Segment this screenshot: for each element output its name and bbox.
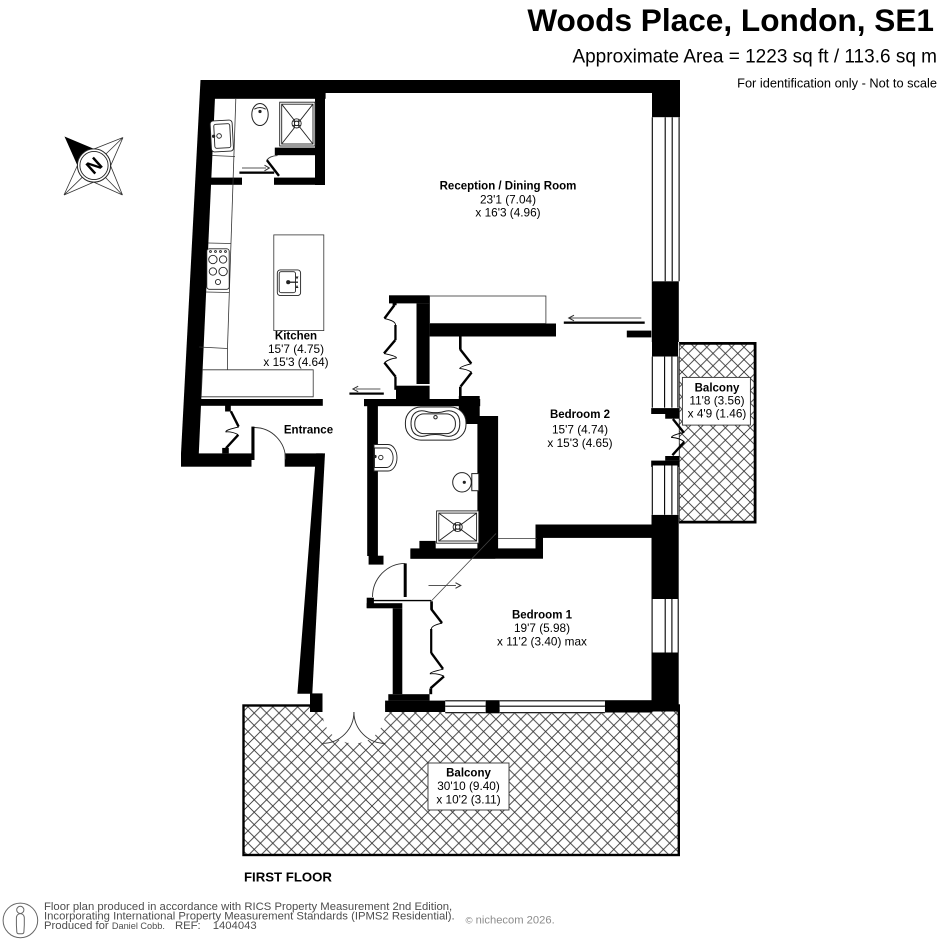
svg-text:15'7 (4.75): 15'7 (4.75) <box>268 342 324 356</box>
svg-text:For identification only - Not: For identification only - Not to scale <box>737 76 937 91</box>
svg-text:Bedroom 1: Bedroom 1 <box>512 610 573 622</box>
svg-text:x 4'9 (1.46): x 4'9 (1.46) <box>688 407 747 421</box>
svg-text:© nichecom 2026.: © nichecom 2026. <box>466 915 555 927</box>
svg-text:23'1 (7.04): 23'1 (7.04) <box>480 192 536 206</box>
svg-text:Woods Place, London, SE1: Woods Place, London, SE1 <box>527 2 934 38</box>
svg-text:x 15'3 (4.65): x 15'3 (4.65) <box>547 436 612 450</box>
svg-text:19'7 (5.98): 19'7 (5.98) <box>514 621 570 635</box>
svg-text:30'10 (9.40): 30'10 (9.40) <box>437 779 500 793</box>
svg-text:x 16'3 (4.96): x 16'3 (4.96) <box>475 206 540 220</box>
svg-text:Reception / Dining Room: Reception / Dining Room <box>440 181 577 193</box>
svg-text:x 15'3 (4.64): x 15'3 (4.64) <box>263 355 328 369</box>
svg-text:FIRST FLOOR: FIRST FLOOR <box>244 870 332 885</box>
svg-text:Produced for Daniel Cobb.REF:1: Produced for Daniel Cobb.REF:1404043 <box>44 920 257 932</box>
svg-text:Balcony: Balcony <box>446 768 491 780</box>
svg-text:Bedroom 2: Bedroom 2 <box>550 409 610 421</box>
svg-text:15'7 (4.74): 15'7 (4.74) <box>552 423 608 437</box>
svg-text:x 11'2 (3.40) max: x 11'2 (3.40) max <box>497 634 587 648</box>
svg-text:x 10'2 (3.11): x 10'2 (3.11) <box>436 793 500 807</box>
svg-text:Kitchen: Kitchen <box>275 331 317 343</box>
svg-text:Entrance: Entrance <box>284 425 333 437</box>
svg-text:11'8 (3.56): 11'8 (3.56) <box>689 394 744 408</box>
svg-text:Approximate Area = 1223 sq ft: Approximate Area = 1223 sq ft / 113.6 sq… <box>572 47 937 68</box>
